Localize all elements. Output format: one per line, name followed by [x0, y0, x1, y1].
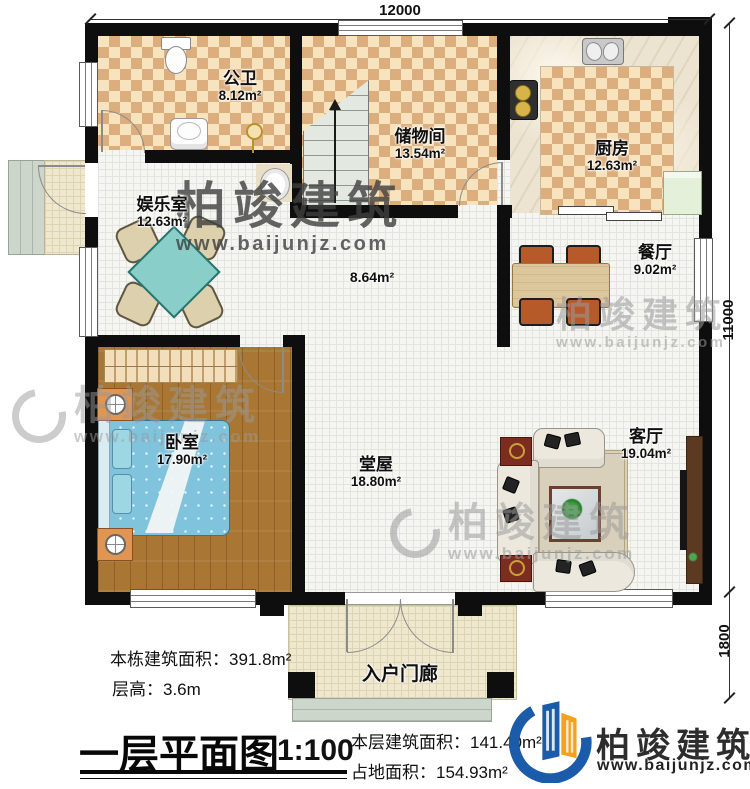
wall-storage-bottom-a [290, 205, 458, 218]
side-table-top-dial [509, 443, 525, 459]
dimension-porch-value: 1800 [716, 601, 736, 681]
floor-plan-canvas: 柏竣建筑 www.baijunjz.com 柏竣建筑 www.baijunjz.… [0, 0, 750, 789]
door-leaf-bathroom [101, 110, 103, 152]
stair-direction-arrow [334, 108, 336, 203]
label-bedroom-name: 卧室 [132, 434, 232, 452]
floor-drain-stem [252, 138, 254, 153]
label-living: 客厅 19.04m² [596, 428, 696, 461]
land-area: 占地面积：154.93m² [351, 758, 508, 783]
label-entertainment-area: 12.63m² [112, 214, 212, 229]
label-main-hall-name: 堂屋 [326, 456, 426, 474]
label-dining-name: 餐厅 [605, 244, 705, 262]
label-storage: 储物间 13.54m² [370, 128, 470, 161]
door-leaf-entrance-left [346, 599, 348, 652]
floor-height: 层高：3.6m [112, 675, 201, 700]
building-total-area: 本栋建筑面积：391.8m² [110, 645, 291, 670]
door-leaf-storage [501, 162, 503, 205]
wall-bedroom-top [85, 335, 240, 347]
window-entertainment-left [79, 247, 98, 337]
label-bathroom: 公卫 8.12m² [190, 70, 290, 103]
label-living-area: 19.04m² [596, 446, 696, 461]
label-bedroom: 卧室 17.90m² [132, 434, 232, 467]
window-bedroom-bottom [130, 589, 256, 608]
stove-burner-bottom [515, 101, 531, 117]
title-underline-thick [80, 770, 347, 774]
plan-scale: 1:100 [277, 734, 354, 768]
nightstand-bottom-dial [105, 534, 126, 555]
label-entrance-porch: 入户门廊 [340, 666, 460, 684]
label-hall-area: 8.64m² [322, 270, 422, 285]
pillar-bottom-left [260, 598, 284, 616]
label-kitchen-area: 12.63m² [562, 158, 662, 173]
side-table-bottom-dial [509, 560, 525, 576]
wall-bathroom-bottom-b [145, 150, 302, 163]
toilet-bowl [165, 46, 187, 74]
bed-pillow-1 [112, 429, 132, 469]
label-main-hall: 堂屋 18.80m² [326, 456, 426, 489]
label-entertainment-name: 娱乐室 [112, 196, 212, 214]
bathroom-sink-basin [177, 122, 201, 140]
label-entrance-porch-name: 入户门廊 [340, 666, 460, 684]
label-dining: 餐厅 9.02m² [605, 244, 705, 277]
bed-headboard [98, 420, 110, 536]
label-bathroom-area: 8.12m² [190, 88, 290, 103]
dimension-right-value: 11000 [720, 280, 740, 360]
wall-bathroom-bottom-a [85, 150, 98, 163]
tv-cabinet-plant [688, 552, 698, 562]
hall-washbasin [260, 168, 290, 201]
label-storage-area: 13.54m² [370, 146, 470, 161]
tv-screen [680, 470, 687, 550]
brand-logo-icon [506, 688, 592, 783]
label-bedroom-area: 17.90m² [132, 452, 232, 467]
label-kitchen: 厨房 12.63m² [562, 140, 662, 173]
wardrobe [104, 349, 238, 383]
floor-drain [246, 123, 263, 140]
stove-burner-top [515, 85, 531, 101]
title-underline-thin [80, 778, 347, 779]
stair-arrow-head [329, 99, 341, 110]
wall-bedroom-right [292, 335, 305, 592]
brand-logo [506, 688, 592, 783]
door-leaf-side-porch [38, 165, 85, 167]
window-storage-top [338, 20, 463, 36]
wall-hall-dining-divider [497, 205, 510, 347]
sofa-pillow-5 [555, 559, 572, 574]
bed-pillow-2 [112, 474, 132, 514]
dining-chair-4 [566, 298, 601, 326]
door-opening-side-porch [85, 163, 98, 217]
potted-plant [561, 498, 583, 520]
label-main-hall-area: 18.80m² [326, 474, 426, 489]
label-storage-name: 储物间 [370, 128, 470, 146]
floor-entrance-porch [288, 605, 517, 700]
watermark-3-logo-glyph [1, 378, 76, 453]
dining-chair-3 [519, 298, 554, 326]
window-bathroom-left [79, 62, 98, 127]
kitchen-sliding-door-2 [606, 212, 662, 221]
fridge [663, 171, 702, 215]
dimension-line-top [90, 19, 710, 20]
door-leaf-bedroom [282, 348, 284, 392]
door-leaf-entrance-right [452, 599, 454, 652]
porch-pillar-left [288, 672, 315, 698]
entrance-steps [292, 698, 492, 722]
brand-url: www.baijunjz.com [597, 757, 750, 775]
label-kitchen-name: 厨房 [562, 140, 662, 158]
label-entertainment: 娱乐室 12.63m² [112, 196, 212, 229]
nightstand-top-dial [105, 394, 126, 415]
dimension-top-value: 12000 [90, 2, 710, 19]
label-bathroom-name: 公卫 [190, 70, 290, 88]
pillar-bottom-right [458, 598, 482, 616]
label-dining-area: 9.02m² [605, 262, 705, 277]
label-living-name: 客厅 [596, 428, 696, 446]
label-hall-area-value: 8.64m² [322, 270, 422, 285]
